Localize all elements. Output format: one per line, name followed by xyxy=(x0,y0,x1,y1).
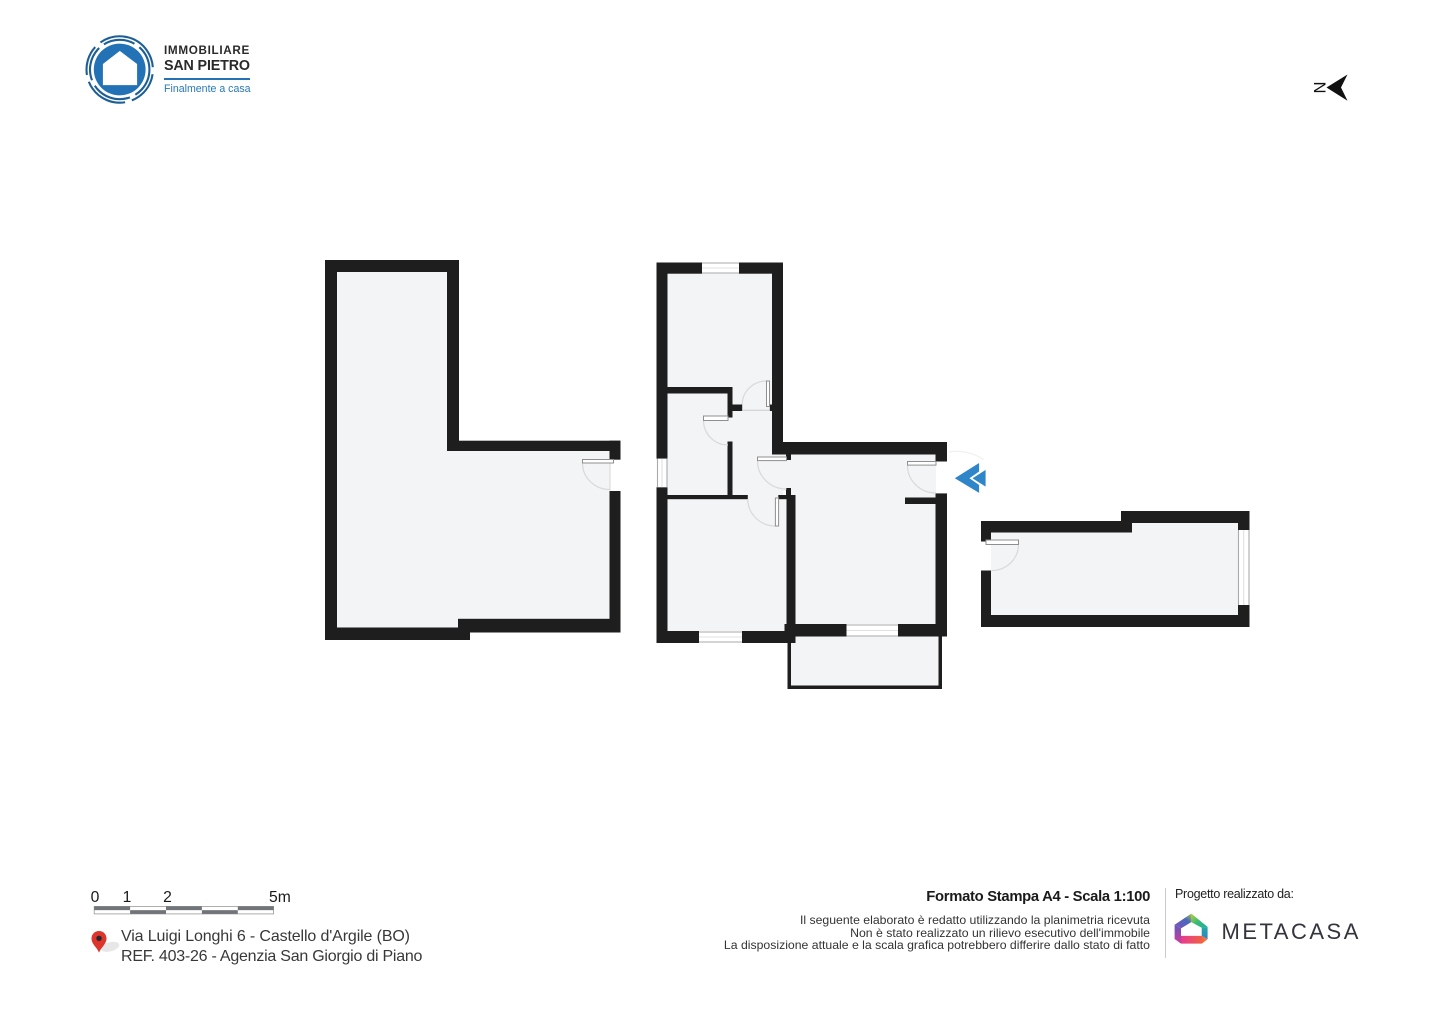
svg-text:N: N xyxy=(1311,82,1329,94)
